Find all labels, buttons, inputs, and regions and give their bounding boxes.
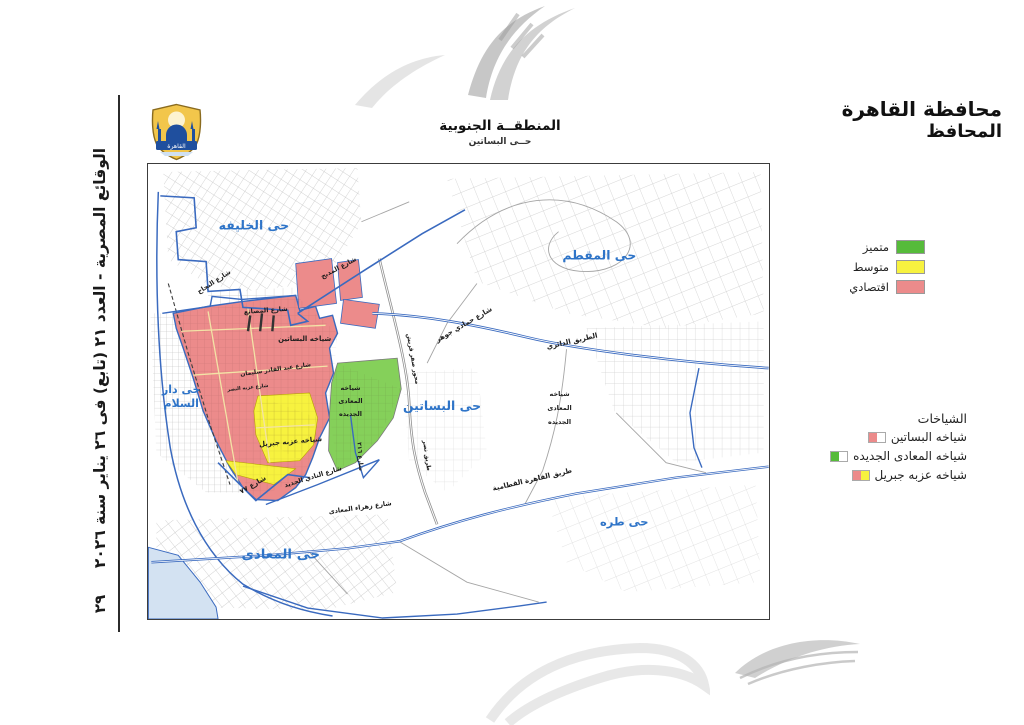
label-sheyakhet-basatin: شياخه البساتين xyxy=(278,335,331,343)
label-maadi-gadida-east-3: الجديده xyxy=(548,418,571,426)
sheyakhat-row-basatin: شياخه البساتين xyxy=(755,430,967,444)
premium-swatch xyxy=(896,240,925,254)
street-label-zahraa-maadi: شارع زهراء المعادى xyxy=(328,499,392,516)
swatch-half xyxy=(839,452,847,461)
legend-row-premium: متميز xyxy=(775,240,925,254)
label-maadi-gadida-green-3: الجديده xyxy=(339,410,362,418)
swatch-half xyxy=(853,471,861,480)
label-maadi-gadida-east-1: شياخه xyxy=(550,390,570,398)
street-label-katameya: طريق القاهرة القطامية xyxy=(492,467,573,493)
district-label-dar-elsalam-2: السلام xyxy=(164,397,199,410)
watermark-flourish-bottom-center xyxy=(480,630,710,725)
economic-label: اقتصادي xyxy=(849,280,889,294)
street-label-216: شارع ٢١٦ xyxy=(355,442,364,471)
street-label-hamadi-gohar: شارع حمادي جوهر xyxy=(433,305,493,344)
sheyakhat-legend-title: الشياخات xyxy=(755,411,967,426)
emblem-text: القاهرة xyxy=(167,143,186,150)
economic-swatch xyxy=(896,280,925,294)
legend-row-economic: اقتصادي xyxy=(775,280,925,294)
page-number: ٢٩ xyxy=(91,595,109,613)
premium-label: متميز xyxy=(863,240,889,254)
medium-swatch xyxy=(896,260,925,274)
sheyakhat-maadi-label: شياخه المعادى الجديده xyxy=(853,449,967,463)
sheyakhat-basatin-swatch xyxy=(868,432,886,443)
swatch-half xyxy=(877,433,885,442)
sheyakhat-gebril-label: شياخه عزبه جبريل xyxy=(875,468,967,482)
medium-label: متوسط xyxy=(853,260,889,274)
sheyakhat-gebril-swatch xyxy=(852,470,870,481)
district-label-dar-elsalam: حى دار xyxy=(161,383,200,396)
gazette-issue-line: الوقائع المصرية - العدد ٢١ (تابع) فى ٢٦ … xyxy=(91,148,109,568)
label-maadi-gadida-green-1: شياخه xyxy=(340,384,360,392)
sheyakhat-basatin-label: شياخه البساتين xyxy=(891,430,967,444)
map-frame: حى الخليفه حى المقطم حى دار السلام حى ال… xyxy=(147,163,770,620)
legend-levels: متميز متوسط اقتصادي xyxy=(775,240,925,300)
governor-subtitle: المحافظ xyxy=(808,121,1002,142)
district-label-khalifa: حى الخليفه xyxy=(219,218,289,233)
swatch-half xyxy=(861,471,869,480)
label-maadi-gadida-east-2: المعادى xyxy=(547,404,571,412)
legend-row-medium: متوسط xyxy=(775,260,925,274)
map-title: المنطقــة الجنوبية xyxy=(380,118,620,134)
basatin-zoning-map: حى الخليفه حى المقطم حى دار السلام حى ال… xyxy=(148,164,769,619)
cairo-governorate-emblem: القاهرة xyxy=(148,103,205,161)
map-title-block: المنطقــة الجنوبية حــى البساتين xyxy=(380,118,620,147)
sheyakhat-row-gebril: شياخه عزبه جبريل xyxy=(755,468,967,482)
watermark-flourish-top xyxy=(340,0,600,110)
sheyakhat-maadi-swatch xyxy=(830,451,848,462)
map-subtitle: حــى البساتين xyxy=(380,137,620,147)
sheyakhat-row-maadi-gadida: شياخه المعادى الجديده xyxy=(755,449,967,463)
district-label-basatin: حى البساتين xyxy=(403,398,481,413)
gazette-page: الوقائع المصرية - العدد ٢١ (تابع) فى ٢٦ … xyxy=(0,0,1024,725)
governorate-title: محافظة القاهرة xyxy=(808,98,1002,121)
legend-sheyakhat: الشياخات شياخه البساتين شياخه المعادى ال… xyxy=(755,411,967,487)
district-label-maadi: حى المعادى xyxy=(242,547,320,562)
district-label-mokattam: حى المقطم xyxy=(562,248,636,263)
swatch-half xyxy=(831,452,839,461)
margin-divider-line xyxy=(118,95,120,632)
district-label-tora: حى طره xyxy=(600,514,648,528)
governorate-header: محافظة القاهرة المحافظ xyxy=(808,98,1002,142)
watermark-flourish-bottom-right xyxy=(730,628,870,703)
swatch-half xyxy=(869,433,877,442)
label-maadi-gadida-green-2: المعادى xyxy=(338,397,362,405)
